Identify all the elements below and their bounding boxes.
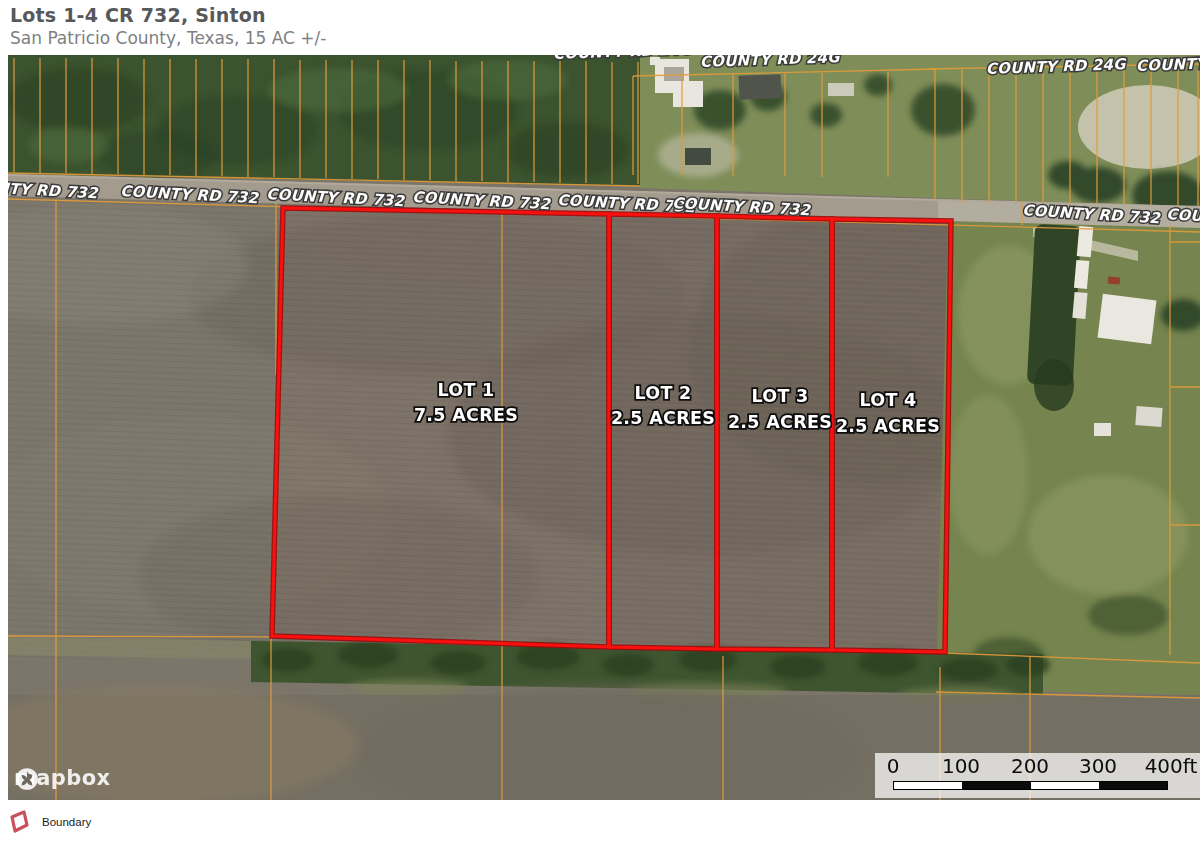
lot-3-boundary: [717, 216, 832, 650]
lot-1-name: LOT 1: [437, 380, 494, 400]
scale-tick-200: 200: [1011, 754, 1049, 778]
scale-tick-100: 100: [942, 754, 980, 778]
aerial-imagery: COUNTY RD 24G COUNTY RD 24G COUNTY RD 24…: [8, 55, 1200, 800]
header: Lots 1-4 CR 732, Sinton San Patricio Cou…: [10, 4, 326, 48]
scale-tick-0: 0: [887, 754, 900, 778]
boundary-polygon-icon: [8, 809, 30, 835]
page-subtitle: San Patricio County, Texas, 15 AC +/-: [10, 28, 326, 48]
scale-bar-segments: [893, 781, 1168, 790]
map-canvas[interactable]: COUNTY RD 24G COUNTY RD 24G COUNTY RD 24…: [8, 55, 1200, 800]
scale-segment: [1031, 782, 1099, 789]
lot-2-acres: 2.5 ACRES: [611, 408, 715, 428]
scale-tick-400: 400ft: [1145, 754, 1198, 778]
scale-segment: [1099, 782, 1167, 789]
legend-item-label: Boundary: [42, 816, 91, 828]
mapbox-logo[interactable]: mapbox: [14, 766, 111, 790]
lot-4-name: LOT 4: [859, 390, 916, 410]
scale-tick-300: 300: [1079, 754, 1117, 778]
lot-1-boundary: [272, 208, 609, 647]
scale-bar: 0 100 200 300 400ft: [875, 753, 1200, 798]
lot-1-acres: 7.5 ACRES: [414, 405, 518, 425]
scale-segment: [894, 782, 962, 789]
road-label-cr732-8: COU: [1166, 205, 1200, 225]
lot-2-boundary: [609, 214, 717, 649]
road-label-cr24g-4: COUNTY: [1136, 55, 1200, 75]
legend: Boundary: [8, 809, 91, 835]
lot-3-name: LOT 3: [751, 386, 808, 406]
scale-segment: [962, 782, 1030, 789]
lot-3-acres: 2.5 ACRES: [728, 412, 832, 432]
lot-2-name: LOT 2: [634, 383, 691, 403]
page-title: Lots 1-4 CR 732, Sinton: [10, 4, 326, 27]
mapbox-icon: [14, 766, 40, 792]
lot-4-acres: 2.5 ACRES: [836, 416, 940, 436]
